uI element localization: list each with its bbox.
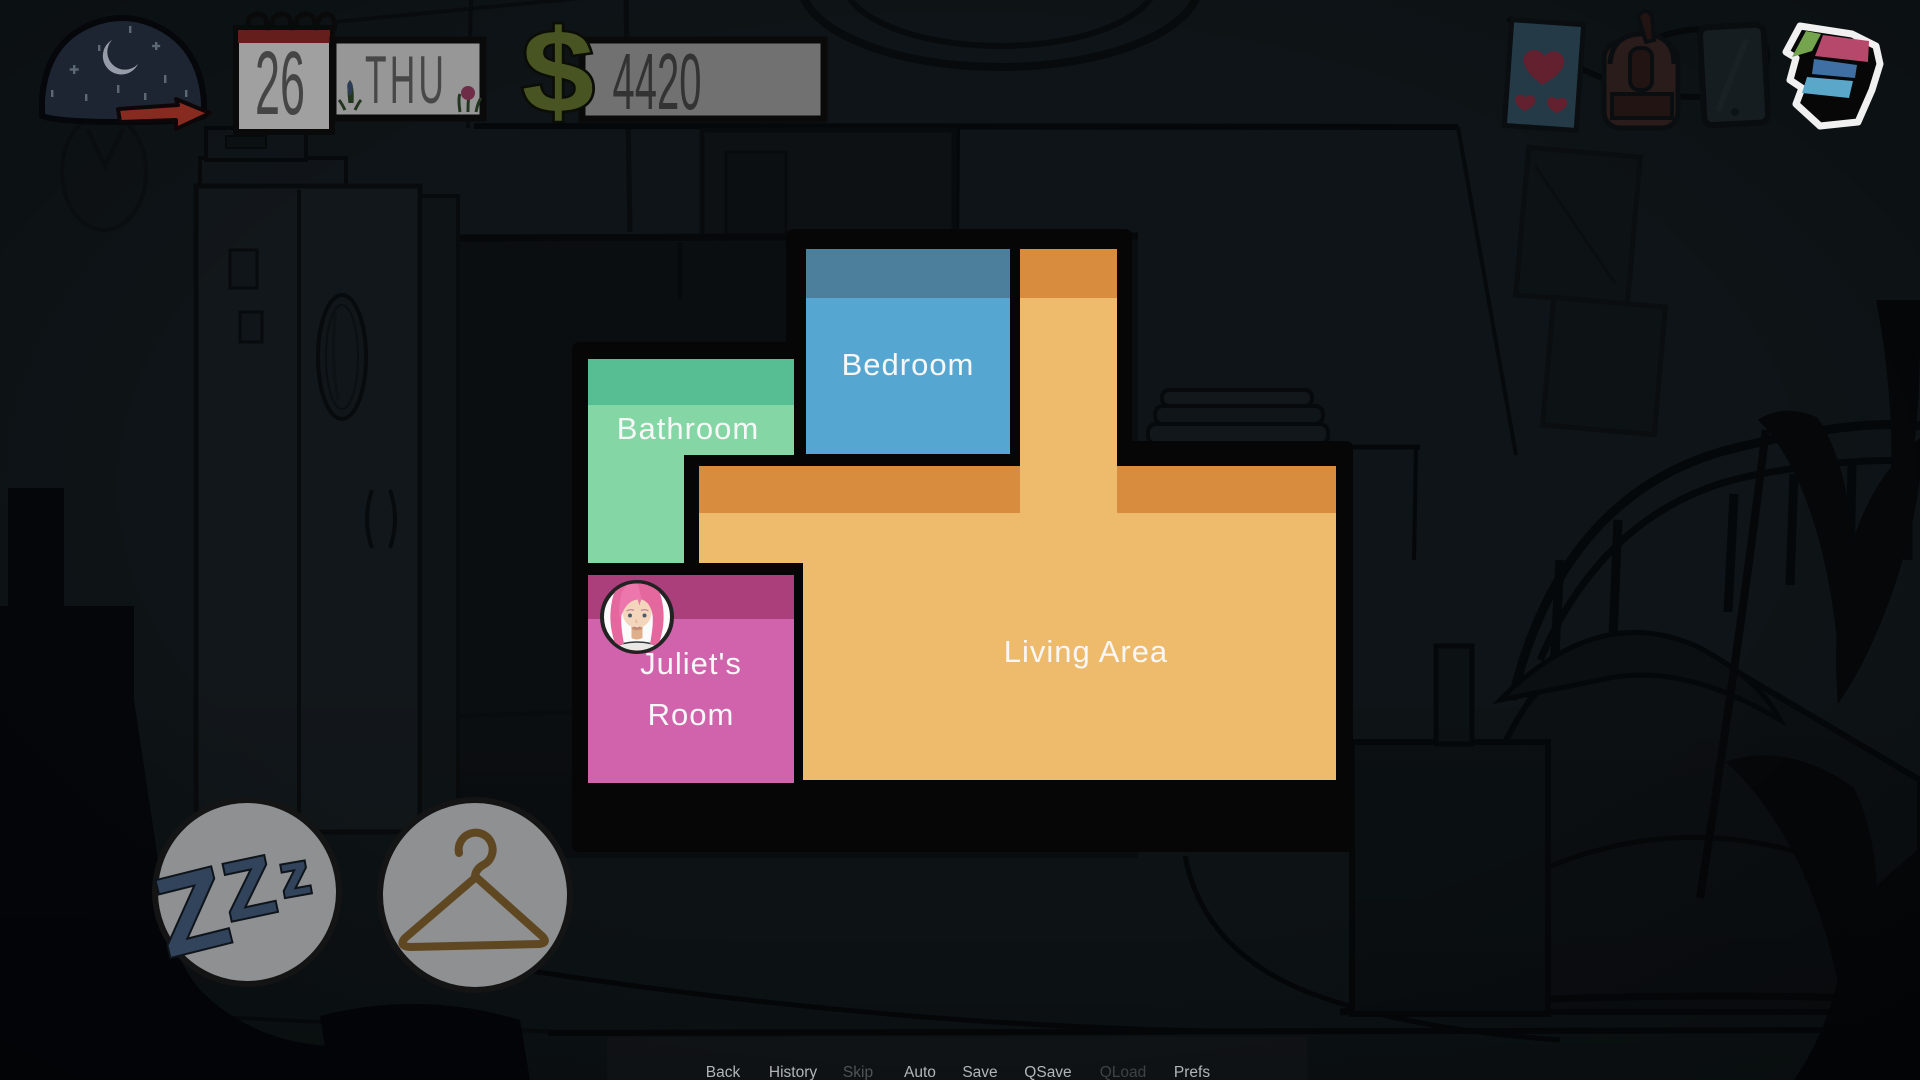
svg-text:4420: 4420 [613, 38, 702, 127]
svg-text:Juliet's: Juliet's [640, 646, 742, 681]
svg-text:Save: Save [962, 1064, 997, 1080]
svg-text:Bedroom: Bedroom [842, 347, 975, 382]
svg-text:Room: Room [648, 697, 735, 732]
svg-text:Living Area: Living Area [1004, 634, 1168, 669]
svg-text:THU: THU [365, 43, 447, 118]
svg-text:26: 26 [255, 34, 305, 134]
svg-text:$: $ [522, 6, 594, 137]
svg-text:History: History [769, 1064, 817, 1080]
svg-text:QLoad: QLoad [1100, 1064, 1147, 1080]
svg-text:Bathroom: Bathroom [617, 411, 759, 446]
svg-text:Back: Back [706, 1064, 741, 1080]
svg-text:QSave: QSave [1024, 1064, 1071, 1080]
svg-text:Skip: Skip [843, 1064, 873, 1080]
svg-text:Auto: Auto [904, 1064, 936, 1080]
svg-text:Prefs: Prefs [1174, 1064, 1210, 1080]
